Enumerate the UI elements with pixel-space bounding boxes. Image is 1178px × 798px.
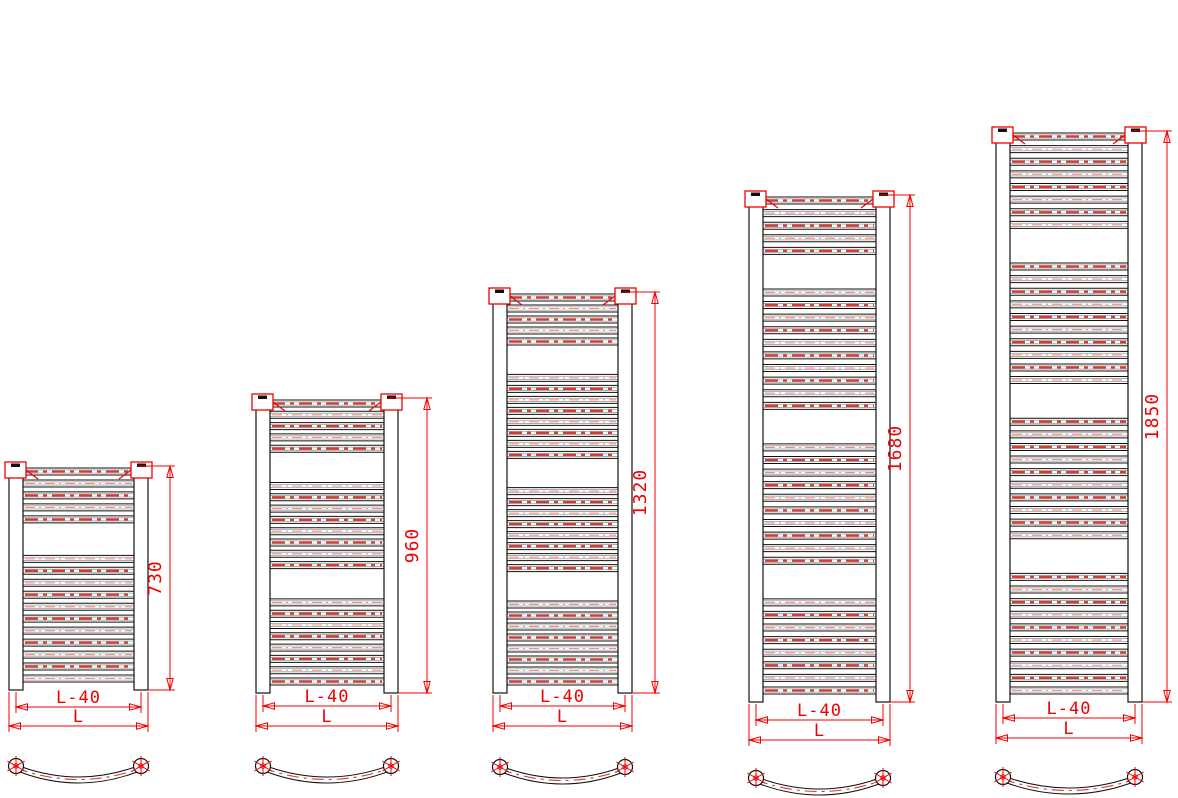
tube: [1009, 158, 1129, 165]
tube: [506, 678, 619, 685]
curved-top-view: [747, 768, 891, 795]
inner-width-label: L-40: [797, 701, 842, 721]
curved-top-view: [7, 756, 149, 783]
technical-drawing-canvas: 730L-40L960L-40L1320L-40L1680L-40L1850L-…: [0, 0, 1178, 798]
cap-plug-mark: [998, 129, 1007, 133]
tube: [269, 516, 385, 523]
tube: [762, 377, 877, 384]
curved-top-view: [254, 756, 399, 783]
tube: [762, 662, 877, 669]
tube: [762, 557, 877, 564]
tube: [269, 599, 385, 606]
tube: [22, 639, 135, 646]
left-collector: [749, 199, 763, 702]
tube: [22, 480, 135, 487]
tube: [269, 411, 385, 418]
tube: [506, 623, 619, 630]
right-collector: [1128, 135, 1142, 702]
tube: [506, 418, 619, 425]
tube: [506, 385, 619, 392]
tube: [1009, 674, 1129, 681]
tube: [506, 488, 619, 495]
tube: [1009, 263, 1129, 270]
tube-group: [269, 400, 385, 685]
tube-group: [22, 468, 135, 682]
tube: [1009, 276, 1129, 283]
tube: [22, 651, 135, 658]
tube: [269, 445, 385, 452]
tube: [506, 499, 619, 506]
tube: [1009, 456, 1129, 463]
tube: [1009, 507, 1129, 514]
tube: [1009, 662, 1129, 669]
tube: [1009, 519, 1129, 526]
arc-outer-edge: [762, 779, 877, 789]
tube: [269, 400, 385, 407]
tube: [22, 468, 135, 475]
tube: [1009, 687, 1129, 694]
tube: [1009, 364, 1129, 371]
tube: [269, 550, 385, 557]
tube: [22, 615, 135, 622]
tube: [1009, 469, 1129, 476]
tube: [762, 469, 877, 476]
tube: [762, 649, 877, 656]
tube: [506, 543, 619, 550]
tube: [1009, 599, 1129, 606]
tube: [506, 374, 619, 381]
height-dimension-label: 730: [145, 560, 166, 596]
tube: [762, 197, 877, 204]
radiator-960: 960L-40L: [252, 394, 432, 783]
tube: [506, 440, 619, 447]
tube: [269, 667, 385, 674]
tube: [762, 222, 877, 229]
tube: [1009, 171, 1129, 178]
tube: [1009, 351, 1129, 358]
radiator-1850: 1850L-40L: [992, 127, 1172, 794]
tube: [762, 235, 877, 242]
tube: [22, 555, 135, 562]
tube: [269, 562, 385, 569]
tube: [269, 539, 385, 546]
tube: [22, 591, 135, 598]
arc-centerline: [1003, 779, 1135, 791]
arc-centerline: [500, 769, 625, 781]
tube: [506, 451, 619, 458]
tube: [762, 247, 877, 254]
tube: [762, 507, 877, 514]
tube: [762, 339, 877, 346]
tube: [506, 554, 619, 561]
arc-centerline: [756, 780, 883, 792]
tube: [1009, 183, 1129, 190]
tube: [762, 402, 877, 409]
tube: [1009, 573, 1129, 580]
tube: [22, 663, 135, 670]
tube: [269, 494, 385, 501]
tube: [506, 667, 619, 674]
tube-group: [762, 197, 877, 694]
tube: [506, 305, 619, 312]
tube: [1009, 288, 1129, 295]
tube: [506, 634, 619, 641]
tube: [762, 289, 877, 296]
tube: [22, 675, 135, 682]
left-collector: [493, 296, 507, 693]
tube: [762, 545, 877, 552]
outer-width-label: L: [73, 707, 84, 727]
tube: [269, 610, 385, 617]
tube: [506, 429, 619, 436]
tube: [762, 210, 877, 217]
tube: [762, 302, 877, 309]
tube: [506, 338, 619, 345]
tube: [22, 627, 135, 634]
cap-plug-mark: [495, 290, 504, 294]
tube: [1009, 532, 1129, 539]
cap-plug-mark: [751, 193, 760, 197]
tube: [506, 327, 619, 334]
tube: [22, 516, 135, 523]
tube: [506, 532, 619, 539]
tube: [1009, 611, 1129, 618]
tube: [762, 444, 877, 451]
tube: [506, 645, 619, 652]
tube: [269, 633, 385, 640]
tube: [1009, 481, 1129, 488]
inner-width-label: L-40: [540, 687, 585, 707]
tube: [762, 327, 877, 334]
height-dimension-label: 1850: [1142, 393, 1163, 440]
tube: [762, 519, 877, 526]
tube: [506, 510, 619, 517]
tube: [762, 624, 877, 631]
cap-plug-mark: [258, 396, 267, 400]
inner-width-label: L-40: [1047, 699, 1092, 719]
outer-width-label: L: [321, 707, 332, 727]
tube: [762, 687, 877, 694]
tube: [506, 612, 619, 619]
tube: [269, 434, 385, 441]
tube: [269, 423, 385, 430]
tube: [762, 637, 877, 644]
tube: [762, 456, 877, 463]
curved-top-view: [491, 757, 633, 784]
arc-outer-edge: [22, 767, 135, 777]
outer-width-label: L: [814, 721, 825, 741]
tube: [762, 532, 877, 539]
tube: [506, 294, 619, 301]
height-dimension-label: 1320: [630, 469, 651, 516]
right-collector: [384, 402, 398, 693]
curved-top-view: [994, 767, 1143, 794]
tube: [506, 656, 619, 663]
tube: [1009, 418, 1129, 425]
arc-centerline: [263, 768, 391, 780]
tube: [22, 579, 135, 586]
tube: [506, 601, 619, 608]
tube: [22, 567, 135, 574]
tube: [762, 390, 877, 397]
arc-outer-edge: [1009, 778, 1129, 788]
tube: [1009, 301, 1129, 308]
tube: [762, 599, 877, 606]
cap-plug-mark: [11, 464, 20, 468]
tube: [762, 611, 877, 618]
tube: [269, 655, 385, 662]
left-collector: [9, 470, 23, 690]
tube: [1009, 431, 1129, 438]
tube: [1009, 649, 1129, 656]
tube: [762, 494, 877, 501]
tube: [762, 482, 877, 489]
outer-width-label: L: [557, 707, 568, 727]
arc-outer-edge: [506, 768, 619, 778]
radiator-730: 730L-40L: [5, 462, 175, 783]
tube: [269, 644, 385, 651]
tube: [506, 396, 619, 403]
tube: [762, 314, 877, 321]
tube: [22, 603, 135, 610]
tube: [1009, 339, 1129, 346]
tube: [1009, 196, 1129, 203]
tube: [1009, 313, 1129, 320]
tube: [506, 565, 619, 572]
tube: [269, 678, 385, 685]
tube: [1009, 326, 1129, 333]
tube: [1009, 146, 1129, 153]
radiator-dimension-drawing: 730L-40L960L-40L1320L-40L1680L-40L1850L-…: [0, 0, 1178, 798]
tube: [1009, 443, 1129, 450]
tube: [1009, 133, 1129, 140]
tube: [1009, 209, 1129, 216]
tube-group: [506, 294, 619, 685]
tube-group: [1009, 133, 1129, 694]
tube: [269, 528, 385, 535]
height-dimension-label: 1680: [885, 425, 906, 472]
radiator-1320: 1320L-40L: [489, 288, 660, 784]
tube: [269, 505, 385, 512]
tube: [762, 365, 877, 372]
arc-centerline: [16, 768, 141, 780]
tube: [506, 407, 619, 414]
tube: [762, 674, 877, 681]
tube: [1009, 624, 1129, 631]
tube: [1009, 221, 1129, 228]
tube: [22, 492, 135, 499]
left-collector: [996, 135, 1010, 702]
outer-width-label: L: [1063, 719, 1074, 739]
inner-width-label: L-40: [305, 687, 350, 707]
tube: [1009, 586, 1129, 593]
tube: [269, 621, 385, 628]
arc-outer-edge: [269, 767, 385, 777]
tube: [506, 316, 619, 323]
tube: [506, 521, 619, 528]
tube: [1009, 494, 1129, 501]
inner-width-label: L-40: [56, 688, 101, 708]
tube: [1009, 377, 1129, 384]
tube: [1009, 637, 1129, 644]
tube: [22, 504, 135, 511]
height-dimension-label: 960: [402, 528, 423, 564]
radiator-1680: 1680L-40L: [745, 191, 915, 795]
left-collector: [256, 402, 270, 693]
tube: [762, 352, 877, 359]
tube: [269, 482, 385, 489]
